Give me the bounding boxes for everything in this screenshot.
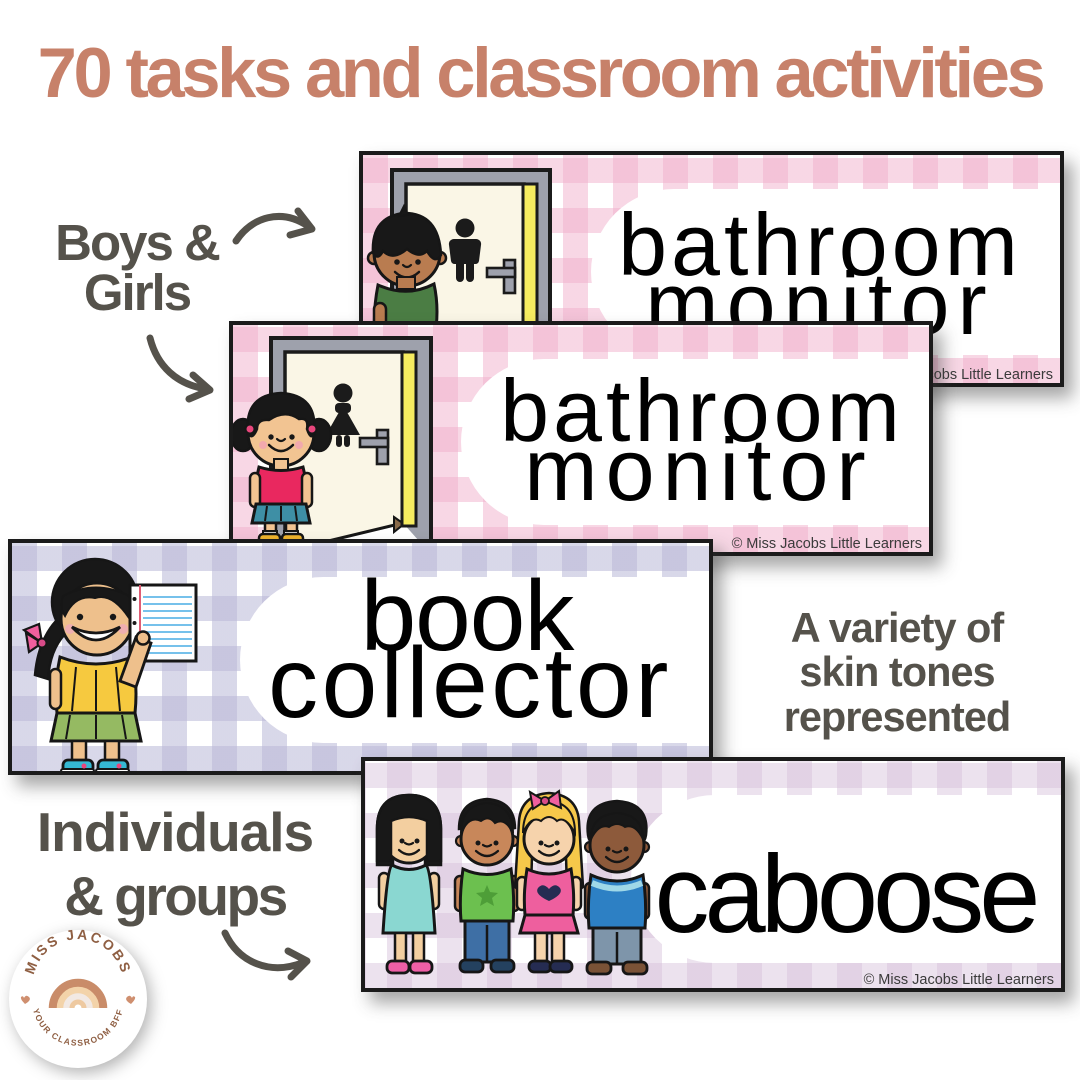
svg-text:Boys &: Boys & bbox=[55, 214, 220, 271]
svg-text:© Miss Jacobs Little Learners: © Miss Jacobs Little Learners bbox=[732, 536, 922, 552]
svg-text:& groups: & groups bbox=[64, 865, 286, 927]
svg-text:collector: collector bbox=[268, 627, 672, 739]
svg-text:Individuals: Individuals bbox=[37, 801, 313, 863]
svg-text:caboose: caboose bbox=[655, 833, 1037, 956]
svg-text:skin tones: skin tones bbox=[799, 648, 994, 695]
svg-text:represented: represented bbox=[784, 693, 1011, 740]
svg-text:monitor: monitor bbox=[524, 420, 873, 519]
svg-text:Girls: Girls bbox=[84, 264, 191, 321]
svg-text:70 tasks and classroom activit: 70 tasks and classroom activities bbox=[38, 33, 1044, 112]
svg-text:A variety of: A variety of bbox=[791, 604, 1005, 651]
svg-text:YOUR CLASSROOM BFF: YOUR CLASSROOM BFF bbox=[31, 1007, 125, 1048]
svg-text:MISS JACOBS: MISS JACOBS bbox=[21, 926, 135, 976]
svg-text:© Miss Jacobs Little Learners: © Miss Jacobs Little Learners bbox=[864, 972, 1054, 988]
